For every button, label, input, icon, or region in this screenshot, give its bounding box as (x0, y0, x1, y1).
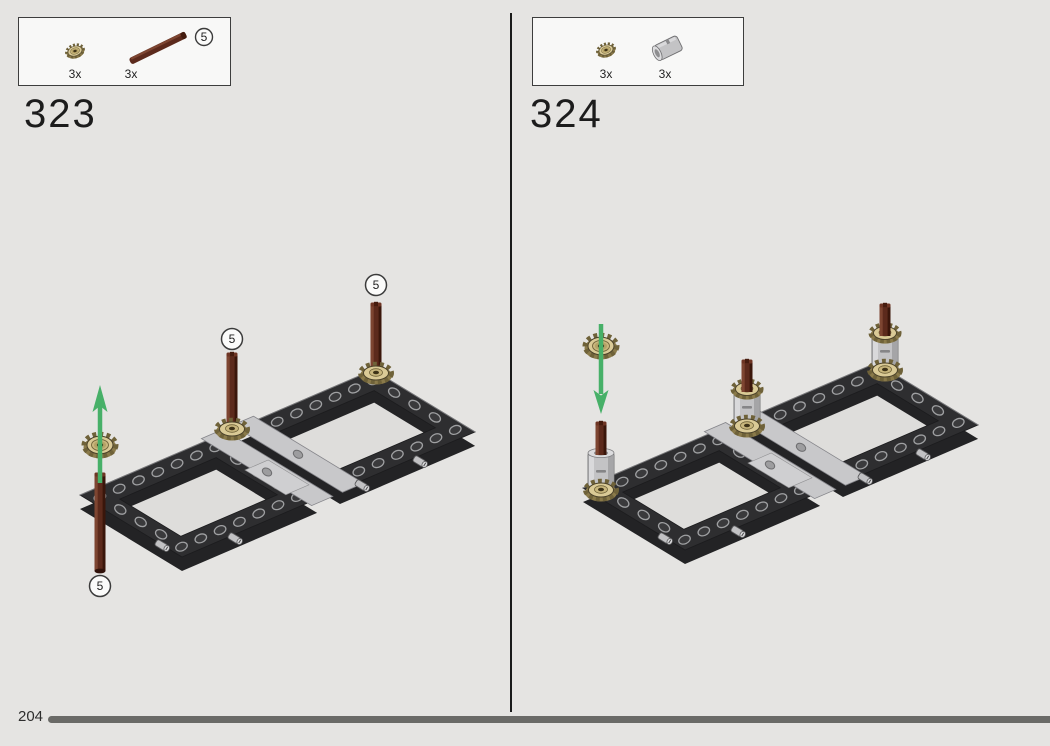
svg-text:5: 5 (97, 579, 104, 593)
parts-box-324: 3x 3x (532, 17, 744, 86)
parts-box-323: 3x 3x 5 (18, 17, 231, 86)
post-middle (731, 359, 763, 438)
parts-box-324-contents: 3x 3x (533, 18, 742, 84)
assembly-diagram-324 (555, 280, 1015, 610)
axle-tip-left (596, 421, 607, 455)
parts-box-323-contents: 3x 3x 5 (19, 18, 229, 84)
instruction-panel-step-324: 3x 3x 324 (512, 0, 1050, 713)
connector-qty-label: 3x (659, 67, 672, 81)
axle-connector-icon (650, 35, 683, 62)
page-number: 204 (18, 708, 43, 725)
bevel-gear-right (360, 364, 392, 384)
post-left (585, 324, 618, 502)
axle-length-badge: 5 (366, 275, 387, 296)
svg-text:5: 5 (229, 332, 236, 346)
svg-text:5: 5 (373, 278, 380, 292)
post-right (869, 303, 901, 382)
svg-text:5: 5 (201, 30, 208, 44)
bevel-gear-icon (65, 43, 86, 61)
bevel-gear-icon (596, 42, 617, 60)
axle-tip-middle (742, 359, 753, 392)
axle-5-middle (227, 352, 238, 427)
technic-frame-assembly (583, 363, 978, 564)
axle-length-badge: 5 (196, 29, 213, 46)
technic-frame-assembly (80, 370, 475, 571)
axle-5-left (95, 472, 106, 574)
instruction-panel-step-323: 3x 3x 5 323 (0, 0, 511, 713)
step-number-324: 324 (530, 94, 603, 134)
panel-divider (510, 13, 512, 712)
gear-qty-label: 3x (600, 67, 613, 81)
gear-qty-label: 3x (69, 67, 82, 81)
axle-length-badge: 5 (90, 576, 111, 597)
assembly-diagram-323: 5 5 5 (50, 265, 495, 605)
axle-tip-right (880, 303, 891, 336)
bevel-gear-middle (216, 420, 248, 440)
progress-bar (48, 716, 1050, 723)
axle-length-badge: 5 (222, 329, 243, 350)
axle-5-right (371, 302, 382, 371)
axle-qty-label: 3x (125, 67, 138, 81)
step-number-323: 323 (24, 94, 97, 134)
axle-5-icon (129, 31, 188, 64)
